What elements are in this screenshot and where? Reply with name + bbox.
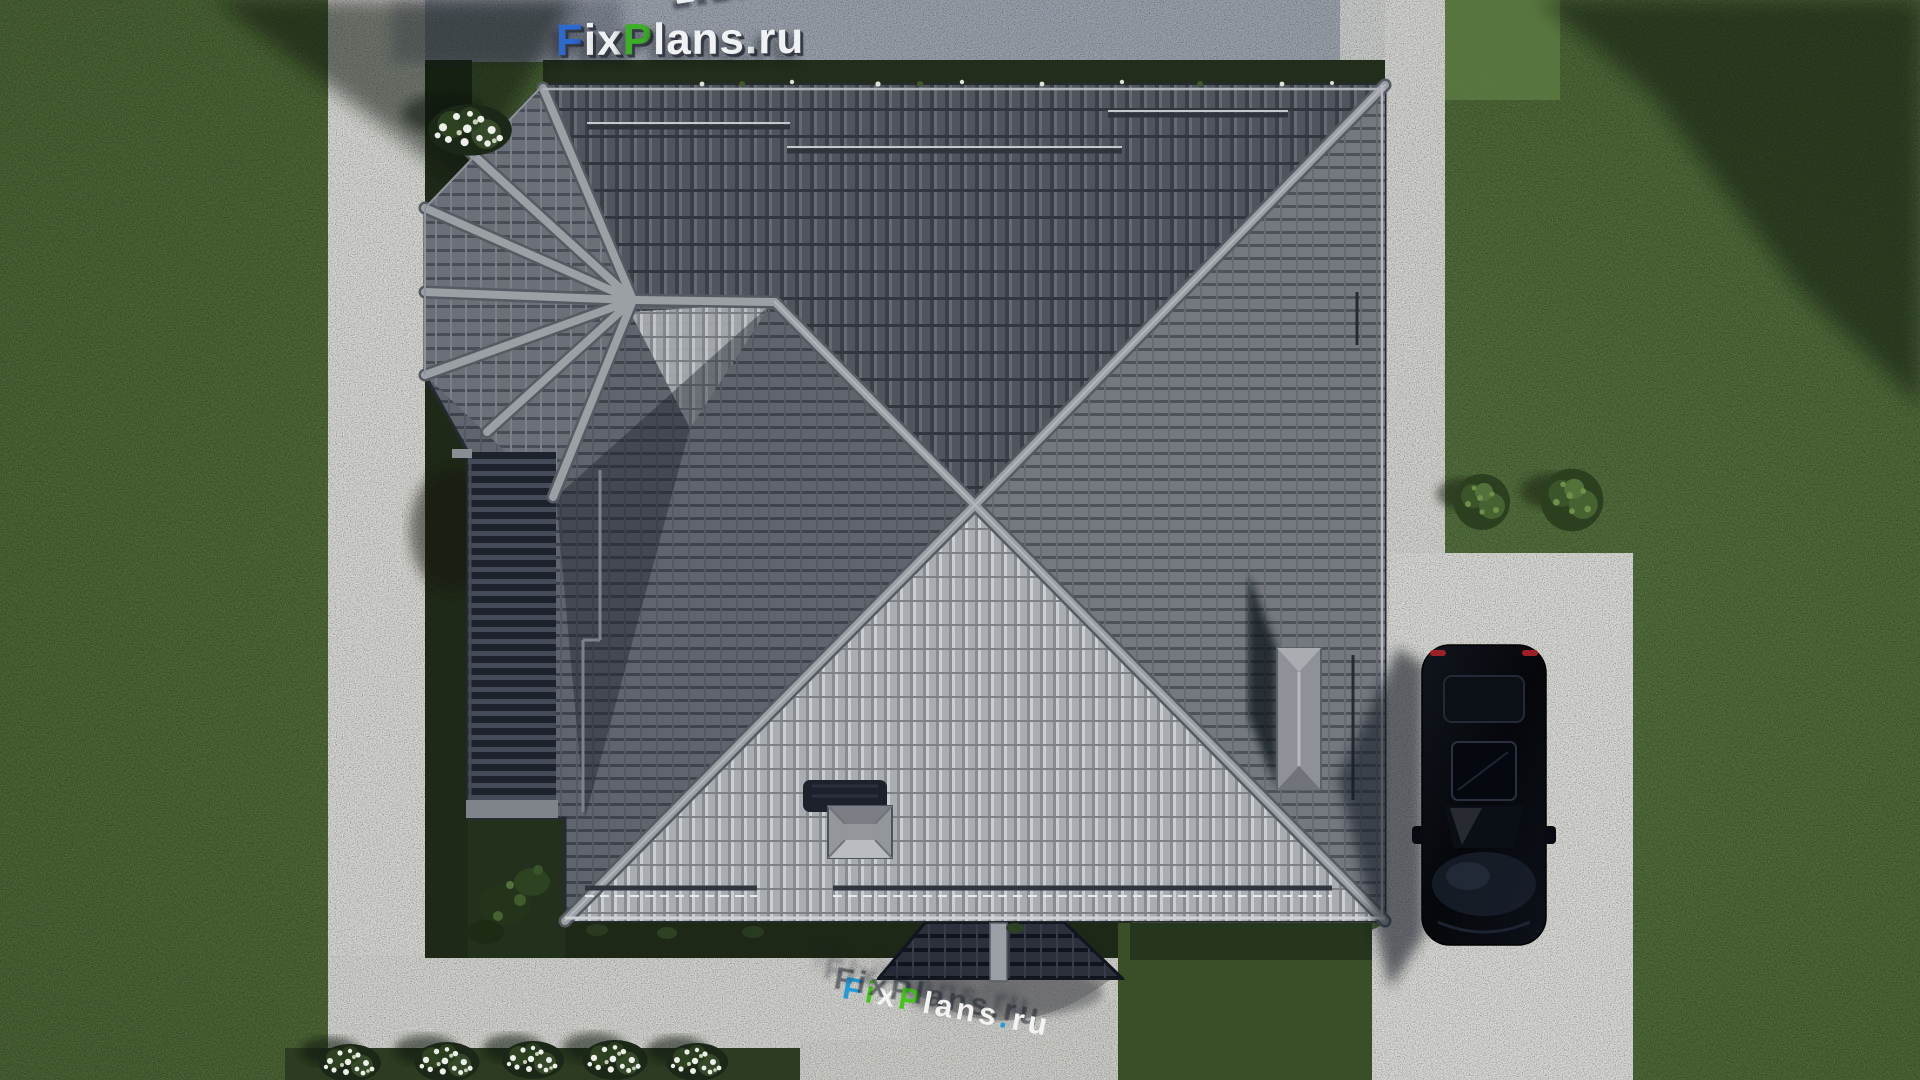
car-mirror-right [1544,826,1556,844]
scene-canvas: FixPlans.ru FixPlans.ru [0,0,1920,1080]
car-mirror-left [1412,826,1424,844]
ground-letters-ru: ru [1009,1001,1054,1043]
logo-letter-p: P [623,15,653,64]
logo-letters-ru: ru [758,14,804,63]
roof-dark-wing [468,452,556,816]
logo-letter-i: i [584,16,597,65]
car-taillight-left [1430,650,1446,656]
brand-logo-watermark: FixPlans.ru [556,17,804,63]
logo-letter-x: x [597,16,622,65]
car-rear-window [1444,676,1524,722]
logo-dot: . [745,14,758,63]
logo-letters-lans: lans [653,14,745,64]
logo-letter-f: F [556,16,584,65]
porch-beam [990,923,1007,981]
car-taillight-right [1522,650,1538,656]
house-roof [425,80,1385,981]
render-svg [0,0,1920,1080]
